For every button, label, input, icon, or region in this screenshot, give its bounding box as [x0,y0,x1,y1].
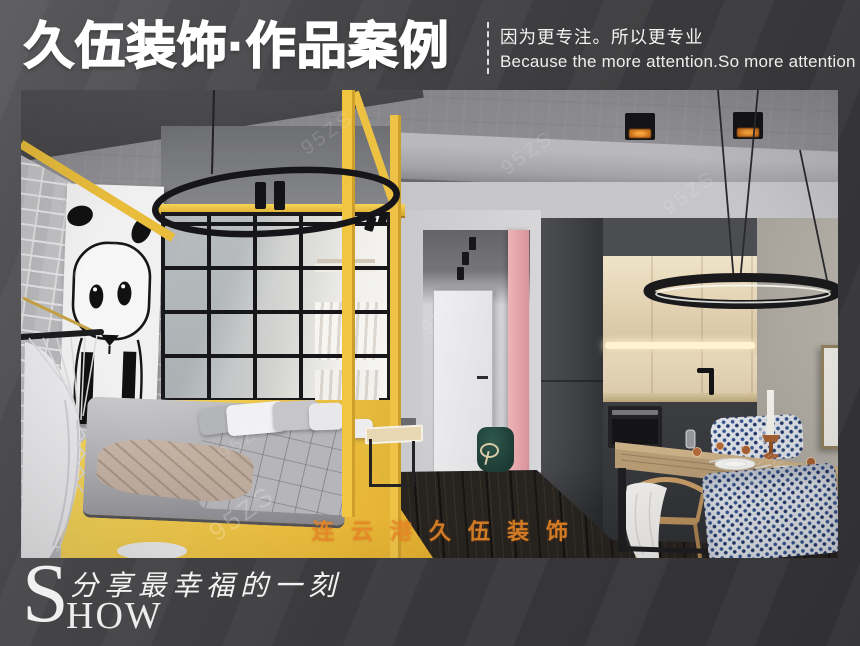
footer-tagline: 分享最幸福的一刻 [70,564,342,604]
brand-title: 久伍装饰·作品案例 [24,14,494,78]
slogan-chinese: 因为更专注。所以更专业 [500,24,704,49]
slogan-english: Because the more attention.So more atten… [500,52,856,72]
footer-show-initial: S [22,552,69,636]
watermark-brand: 连云港久伍装饰 [312,514,585,546]
poster: 久伍装饰·作品案例 因为更专注。所以更专业 Because the more a… [0,0,860,646]
header-divider [487,22,489,74]
